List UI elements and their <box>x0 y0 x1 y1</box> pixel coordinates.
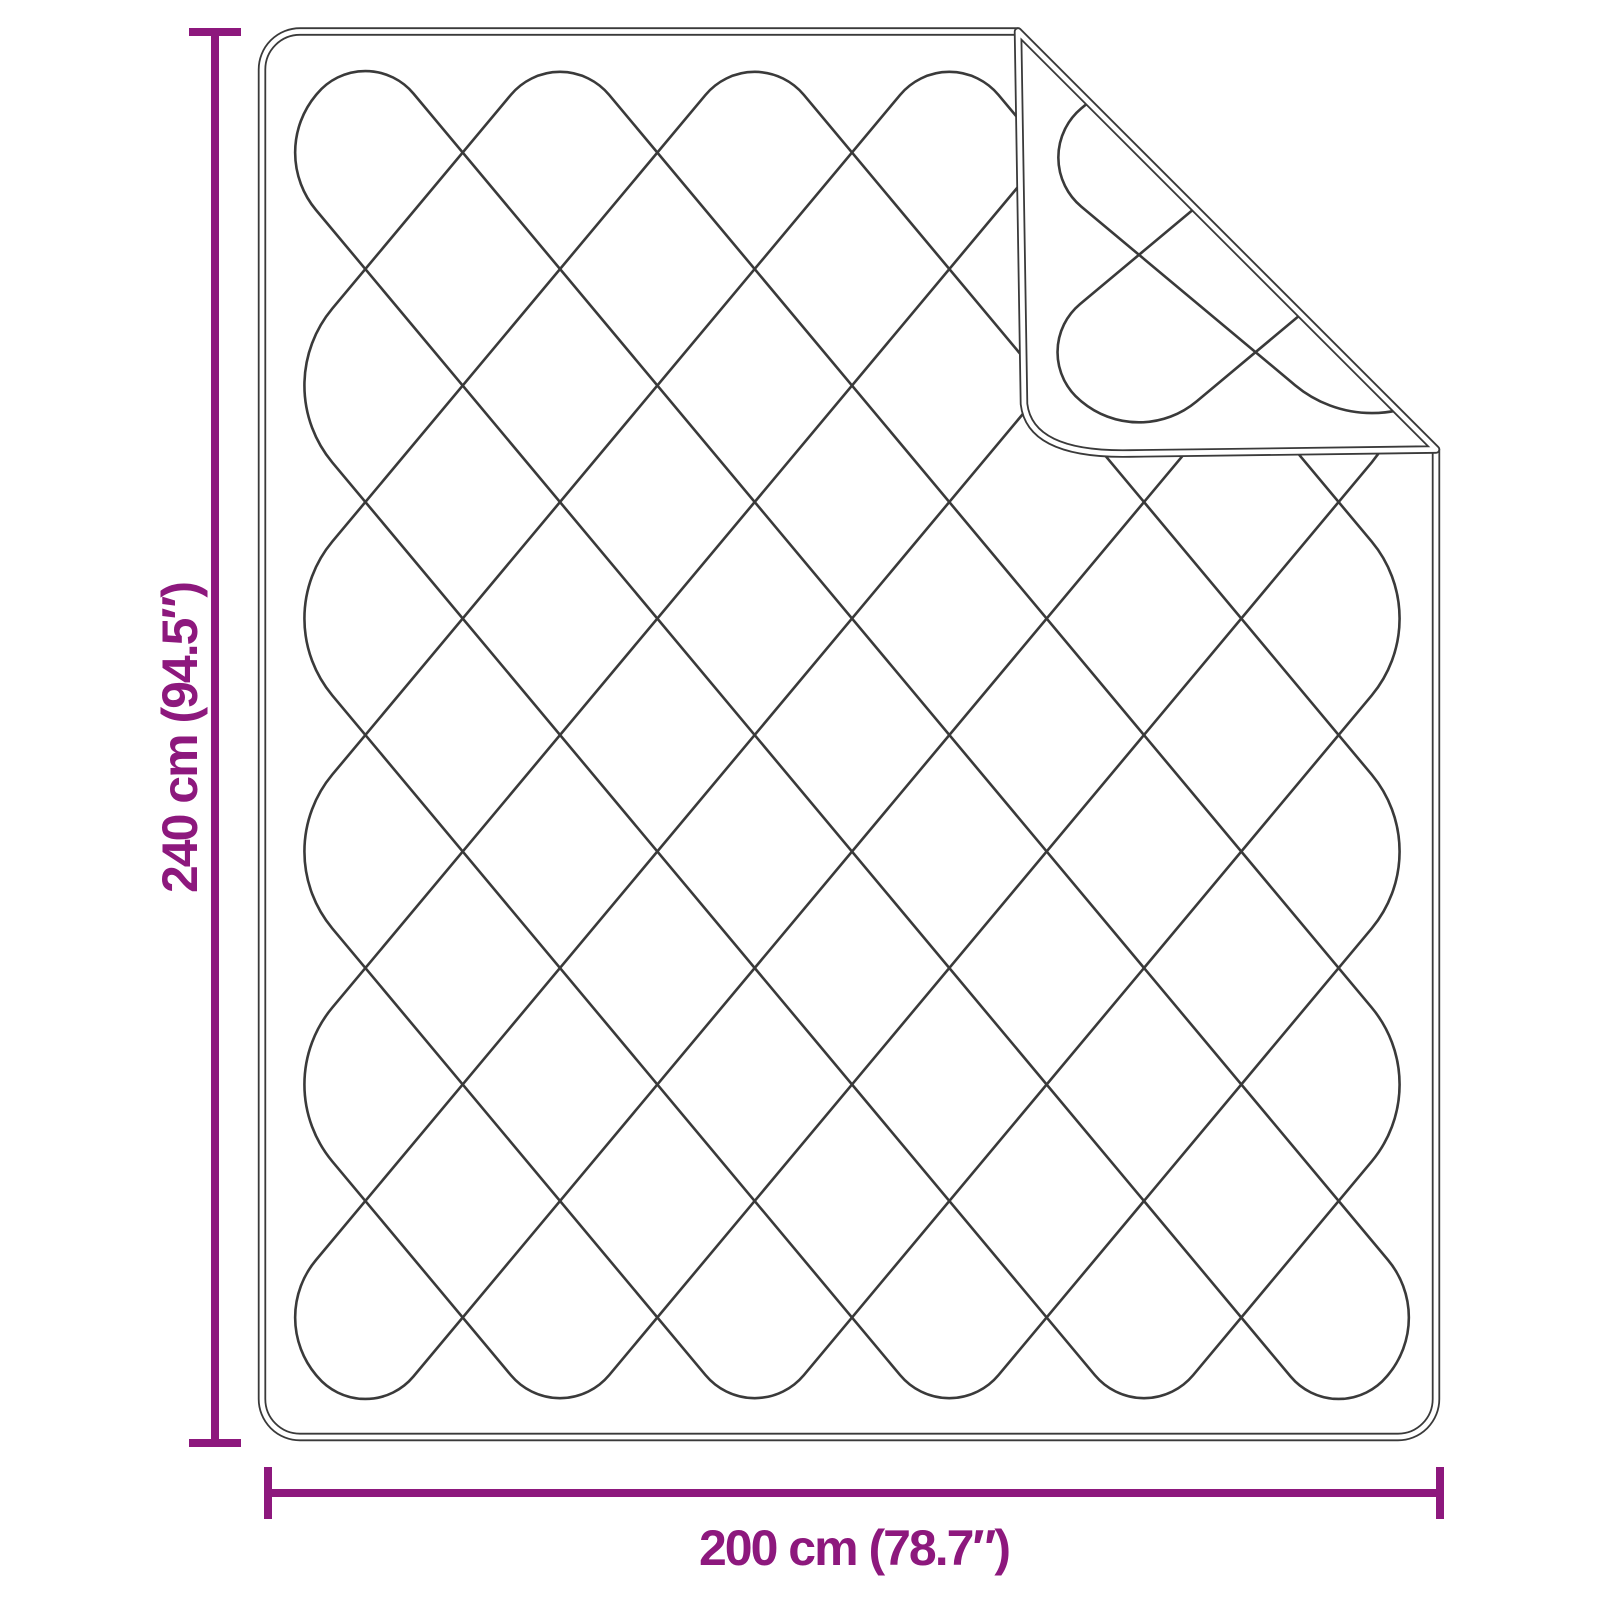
height-dimension: 240 cm (94.5″) <box>152 28 241 1447</box>
width-dimension: 200 cm (78.7″) <box>264 1467 1444 1576</box>
blanket-body <box>262 32 1436 1438</box>
width-dimension-label: 200 cm (78.7″) <box>699 1520 1009 1576</box>
product-dimension-diagram: 240 cm (94.5″) 200 cm (78.7″) <box>0 0 1600 1600</box>
height-dimension-line <box>211 28 219 1447</box>
width-dimension-right-cap <box>1436 1467 1444 1519</box>
width-dimension-line <box>264 1489 1444 1497</box>
height-dimension-bottom-cap <box>189 1439 241 1447</box>
blanket-dimension-drawing: 240 cm (94.5″) 200 cm (78.7″) <box>0 0 1600 1600</box>
height-dimension-label: 240 cm (94.5″) <box>152 583 208 893</box>
width-dimension-left-cap <box>264 1467 272 1519</box>
height-dimension-top-cap <box>189 28 241 36</box>
